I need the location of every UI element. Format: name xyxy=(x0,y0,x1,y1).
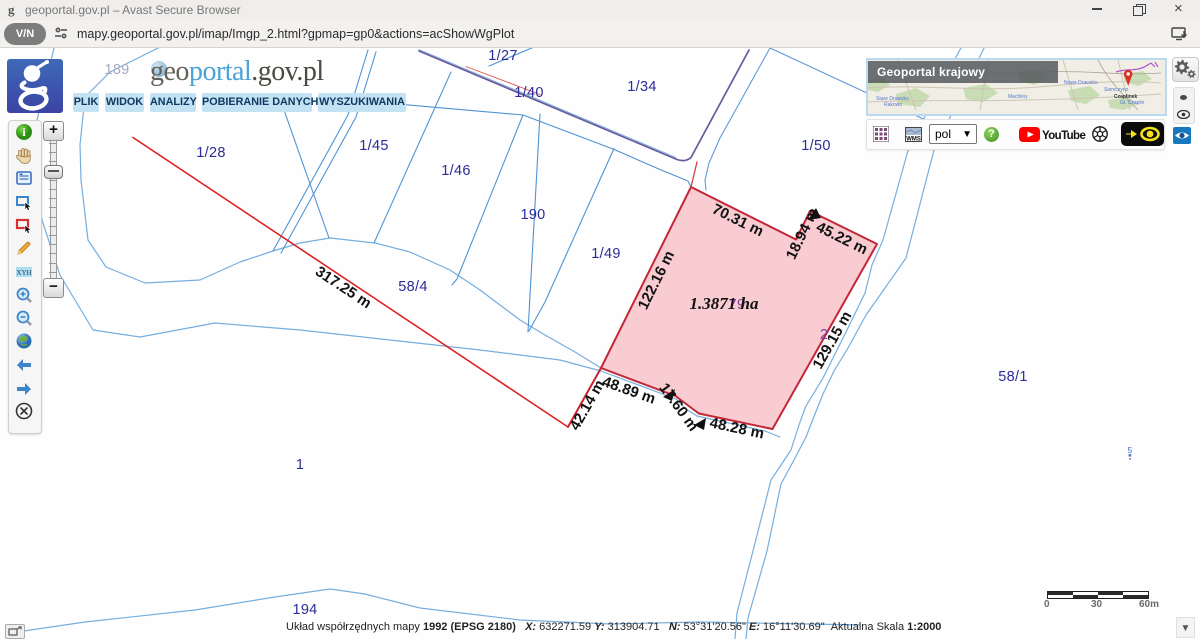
svg-text:1/49: 1/49 xyxy=(591,246,620,262)
svg-text:1/27: 1/27 xyxy=(488,48,517,64)
svg-text:58/1: 58/1 xyxy=(998,369,1027,385)
svg-text:1/40: 1/40 xyxy=(514,85,543,101)
svg-text:190: 190 xyxy=(520,207,545,223)
svg-text:1: 1 xyxy=(296,457,304,473)
svg-text:189: 189 xyxy=(104,62,129,78)
svg-text:1/34: 1/34 xyxy=(627,79,656,95)
svg-text:Nowe Drawsko: Nowe Drawsko xyxy=(1064,80,1098,86)
svg-text:58/4: 58/4 xyxy=(398,279,427,295)
svg-text:5: 5 xyxy=(1127,445,1132,455)
svg-text:1/50: 1/50 xyxy=(801,138,830,154)
svg-text:Czaplinek: Czaplinek xyxy=(1114,94,1138,100)
svg-text:Gł. Czaplin: Gł. Czaplin xyxy=(1120,100,1145,106)
svg-text:WMS: WMS xyxy=(906,137,921,143)
svg-text:1/28: 1/28 xyxy=(196,145,225,161)
svg-text:1/45: 1/45 xyxy=(359,138,388,154)
svg-text:Rakowo: Rakowo xyxy=(884,102,902,108)
svg-text:1.3871 ha: 1.3871 ha xyxy=(690,294,759,313)
svg-text:194: 194 xyxy=(292,602,317,618)
svg-text:XYH: XYH xyxy=(16,269,31,277)
svg-text:YouTube: YouTube xyxy=(1042,130,1085,142)
svg-text:Siemczyno: Siemczyno xyxy=(1104,87,1129,93)
svg-text:1/46: 1/46 xyxy=(441,163,470,179)
svg-text:Machliny: Machliny xyxy=(1008,94,1028,100)
